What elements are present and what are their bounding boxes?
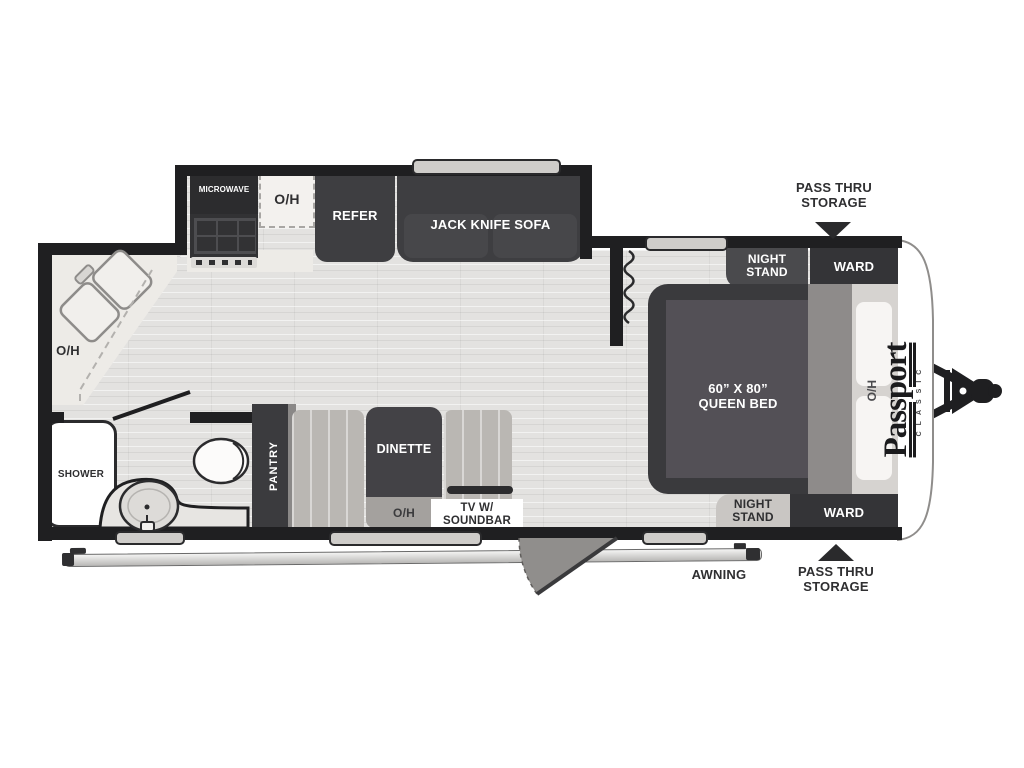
shower-label: SHOWER (45, 469, 117, 480)
awning-endcap (62, 553, 74, 566)
bed-overhead-label: O/H (865, 380, 879, 401)
pantry: PANTRY (252, 404, 296, 528)
bath-overhead-label: O/H (48, 344, 88, 358)
wardrobe-top-label: WARD (810, 260, 898, 274)
rv-floorplan: MICROWAVE O/H REFER JACK KNIFE SOFA O/H … (0, 0, 1024, 768)
window (642, 531, 708, 545)
wall-bath-right (190, 412, 252, 423)
awning-endcap (746, 548, 760, 560)
stove-knob-strip (191, 257, 257, 268)
arrow-down-icon (815, 222, 851, 239)
wall-bath-left (52, 412, 64, 423)
dinette-bench-left (292, 410, 364, 528)
tv-soundbar-icon (447, 486, 513, 494)
night-stand-top-label: NIGHT STAND (734, 253, 800, 279)
brand-logo-series: CLASSIC (916, 312, 923, 488)
wall-slide-step-left (175, 165, 187, 255)
awning-bracket (734, 543, 746, 549)
pass-thru-top-label: PASS THRU STORAGE (788, 180, 880, 210)
sofa-label: JACK KNIFE SOFA (397, 218, 584, 232)
stove-icon (190, 214, 258, 258)
refrigerator-label: REFER (315, 209, 395, 223)
window (645, 236, 728, 251)
wall-bedroom-stub (610, 236, 623, 346)
pass-thru-bottom-label: PASS THRU STORAGE (790, 564, 882, 594)
tv-label: TV W/ SOUNDBAR (431, 502, 523, 527)
window (115, 531, 185, 545)
pantry-label: PANTRY (268, 441, 280, 491)
wall-top-left (38, 243, 187, 255)
brand-logo-name: Passport (880, 312, 913, 488)
kitchen-overhead-label: O/H (259, 192, 315, 207)
awning-label: AWNING (684, 568, 754, 582)
dinette-label: DINETTE (366, 443, 442, 457)
bed-type: QUEEN BED (698, 396, 777, 411)
bed-head-panel (808, 284, 852, 494)
window (412, 159, 561, 175)
wall-left (38, 243, 52, 541)
bed-label: 60” X 80” QUEEN BED (666, 381, 810, 411)
window (329, 531, 482, 546)
microwave-label: MICROWAVE (190, 186, 258, 195)
trailer-tongue-icon (922, 362, 1002, 420)
night-stand-bottom-label: NIGHT STAND (718, 498, 788, 524)
bed-size: 60” X 80” (708, 381, 768, 396)
wall-top-right (580, 236, 902, 248)
stove-knobs (196, 260, 252, 265)
awning-roller (64, 548, 762, 567)
brand-logo: Passport CLASSIC (880, 312, 928, 488)
stove-grate (194, 218, 256, 254)
wardrobe-bottom-label: WARD (790, 506, 898, 520)
arrow-up-icon (818, 544, 854, 561)
